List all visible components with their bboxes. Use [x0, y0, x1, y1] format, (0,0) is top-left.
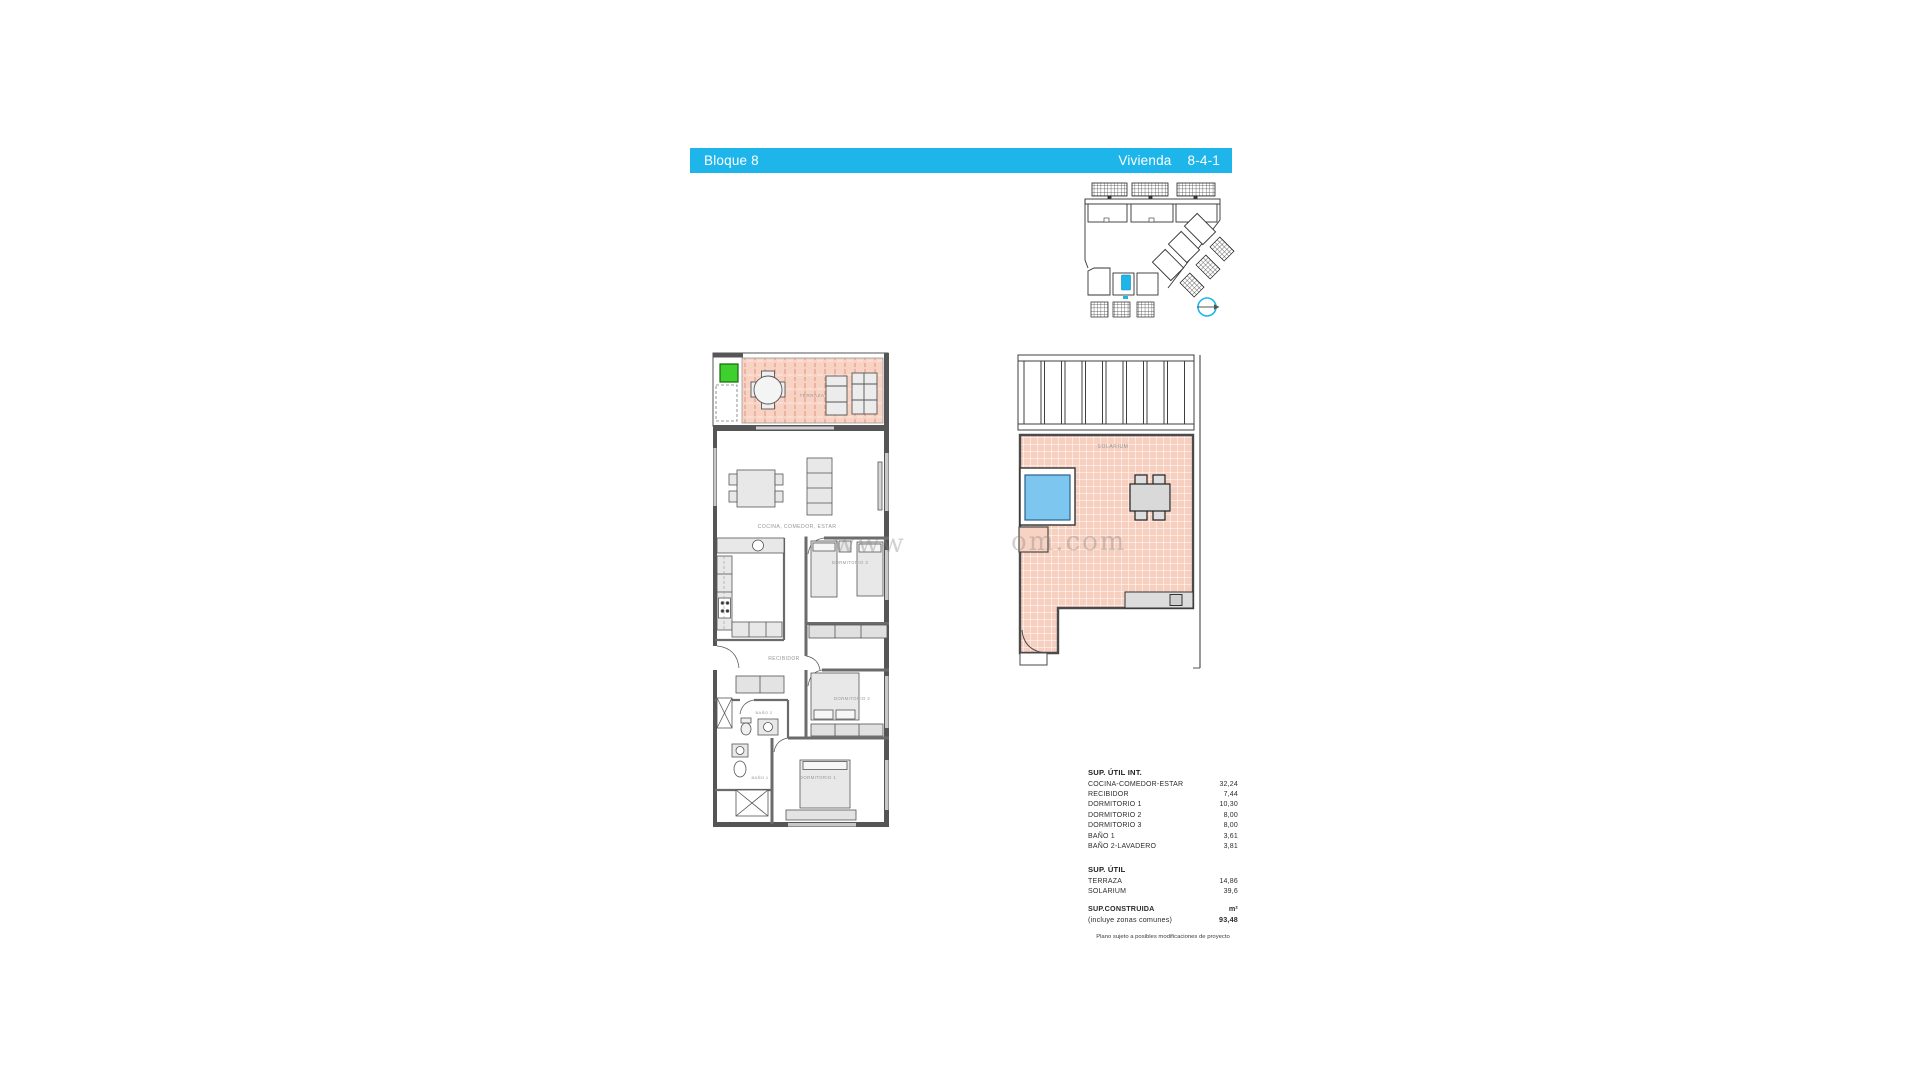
table-row: DORMITORIO 2 8,00	[1088, 811, 1238, 821]
unit-number: 8-4-1	[1187, 153, 1220, 168]
shaft	[717, 698, 732, 728]
bano2-fixtures	[741, 718, 778, 735]
pergola	[1018, 355, 1194, 430]
unit-label: Vivienda	[1118, 153, 1171, 168]
site-key-plan	[1070, 175, 1250, 325]
bano2-label: BAÑO 2	[755, 710, 772, 715]
terraza-area: TERRAZA	[713, 353, 888, 426]
table-row: DORMITORIO 3 8,00	[1088, 821, 1238, 831]
solarium-counter	[1125, 592, 1193, 608]
table-row: SOLARIUM 39,6	[1088, 887, 1238, 897]
apartment-floor-plan: TERRAZA	[700, 340, 910, 840]
kitchen-fixtures	[717, 538, 784, 637]
laundry-units	[736, 676, 784, 693]
green-marker	[720, 364, 738, 382]
terraza-label: TERRAZA	[800, 393, 825, 398]
sup-construida-unit: m²	[1229, 903, 1238, 914]
compass-icon	[1197, 298, 1220, 316]
parking-blocks-top	[1092, 183, 1215, 199]
solarium-plan: SOLARIUM	[1010, 340, 1230, 680]
table-row: BAÑO 2-LAVADERO 3,81	[1088, 842, 1238, 852]
sup-util-int-title: SUP. ÚTIL INT.	[1088, 768, 1238, 777]
dormitorio2-label: DORMITORIO 2	[834, 696, 870, 701]
areas-table: SUP. ÚTIL INT. COCINA-COMEDOR-ESTAR 32,2…	[1088, 768, 1238, 940]
unit-title: Vivienda 8-4-1	[1118, 153, 1220, 168]
table-row: RECIBIDOR 7,44	[1088, 790, 1238, 800]
dormitorio2-furniture	[811, 673, 883, 736]
highlighted-unit-entry	[1123, 296, 1128, 299]
dormitorio1-furniture	[786, 760, 856, 820]
living-furniture	[729, 458, 882, 515]
pool	[1020, 468, 1075, 525]
sup-construida-value: 93,48	[1219, 914, 1238, 925]
living-label: COCINA, COMEDOR, ESTAR	[758, 524, 837, 530]
bano1-fixtures	[732, 744, 768, 816]
dormitorio3-label: DORMITORIO 3	[832, 560, 868, 565]
table-row: COCINA-COMEDOR-ESTAR 32,24	[1088, 780, 1238, 790]
table-row: BAÑO 1 3,61	[1088, 832, 1238, 842]
sup-construida-subtitle: (incluye zonas comunes)	[1088, 914, 1172, 925]
footnote: Plano sujeto a posibles modificaciones d…	[1075, 934, 1251, 940]
sup-util-title: SUP. ÚTIL	[1088, 865, 1238, 874]
solarium-label: SOLARIUM	[1098, 444, 1129, 450]
block-label: Bloque 8	[704, 153, 759, 168]
pool-landing	[1019, 527, 1048, 552]
bano1-label: BAÑO 1	[751, 775, 768, 780]
recibidor-label: RECIBIDOR	[768, 656, 799, 662]
table-row: TERRAZA 14,86	[1088, 877, 1238, 887]
highlighted-unit	[1122, 275, 1131, 290]
sup-construida-title: SUP.CONSTRUIDA	[1088, 903, 1155, 914]
sup-construida-block: SUP.CONSTRUIDA m² (incluye zonas comunes…	[1088, 903, 1238, 925]
parking-blocks-bottom	[1091, 302, 1154, 317]
table-row: DORMITORIO 1 10,30	[1088, 800, 1238, 810]
dormitorio1-label: DORMITORIO 1	[800, 775, 836, 780]
header-bar: Bloque 8 Vivienda 8-4-1	[690, 148, 1232, 173]
